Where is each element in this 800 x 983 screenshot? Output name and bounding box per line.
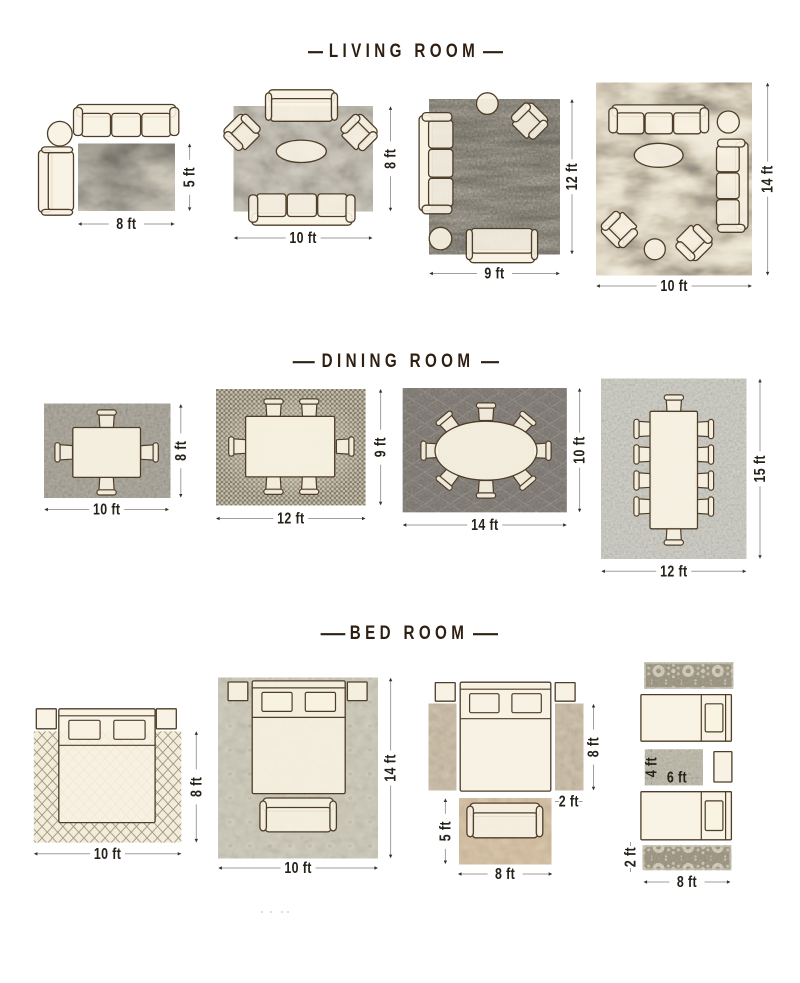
svg-text:10 ft: 10 ft — [289, 229, 316, 247]
svg-text:8 ft: 8 ft — [381, 149, 399, 169]
svg-text:8 ft: 8 ft — [495, 865, 515, 883]
svg-text:LIVING ROOM: LIVING ROOM — [329, 39, 479, 61]
svg-text:12 ft: 12 ft — [660, 562, 687, 580]
svg-text:2 ft: 2 ft — [559, 792, 579, 810]
svg-text:14 ft: 14 ft — [381, 754, 399, 781]
svg-text:12 ft: 12 ft — [277, 509, 304, 527]
svg-text:2 ft: 2 ft — [621, 847, 639, 867]
svg-text:15 ft: 15 ft — [751, 455, 769, 482]
svg-text:10 ft: 10 ft — [284, 859, 311, 877]
svg-text:5 ft: 5 ft — [436, 821, 454, 841]
svg-text:14 ft: 14 ft — [471, 516, 498, 534]
svg-text:DINING ROOM: DINING ROOM — [322, 349, 475, 371]
svg-text:6 ft: 6 ft — [667, 768, 687, 786]
svg-text:14 ft: 14 ft — [758, 165, 776, 192]
svg-text:8 ft: 8 ft — [116, 215, 136, 233]
svg-text:10 ft: 10 ft — [93, 500, 120, 518]
svg-text:9 ft: 9 ft — [371, 437, 389, 457]
svg-text:12 ft: 12 ft — [563, 163, 581, 190]
svg-text:5 ft: 5 ft — [180, 167, 198, 187]
svg-text:10 ft: 10 ft — [570, 436, 588, 463]
svg-text:8 ft: 8 ft — [584, 737, 602, 757]
svg-text:8 ft: 8 ft — [187, 777, 205, 797]
svg-text:4 ft: 4 ft — [642, 757, 660, 777]
svg-text:10 ft: 10 ft — [94, 844, 121, 862]
svg-text:8 ft: 8 ft — [677, 873, 697, 891]
svg-text:8 ft: 8 ft — [171, 441, 189, 461]
svg-text:9 ft: 9 ft — [484, 264, 504, 282]
svg-text:10 ft: 10 ft — [660, 277, 687, 295]
svg-text:BED ROOM: BED ROOM — [350, 621, 469, 643]
